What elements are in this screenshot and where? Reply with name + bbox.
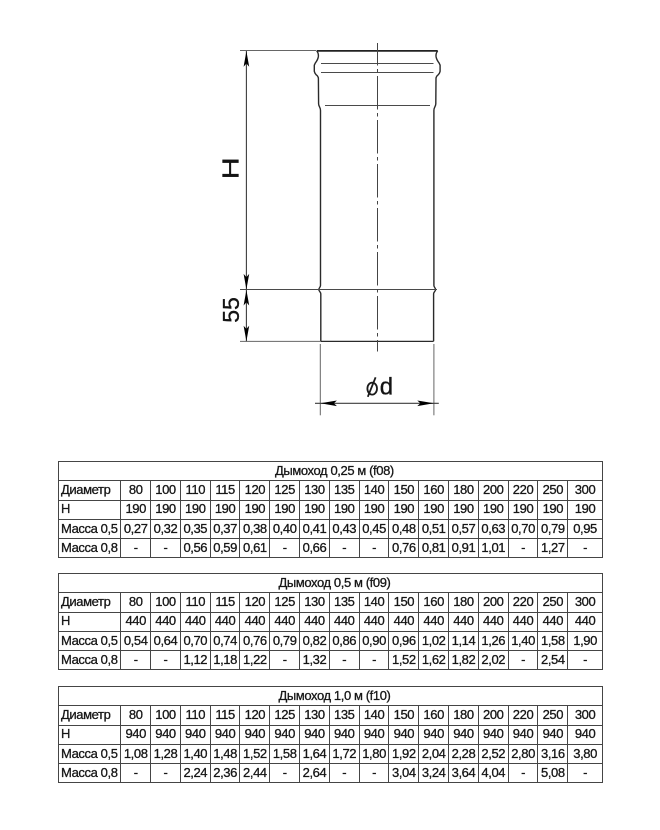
svg-text:d: d [380,374,393,401]
svg-text:55: 55 [218,297,244,323]
svg-text:H: H [218,157,243,179]
